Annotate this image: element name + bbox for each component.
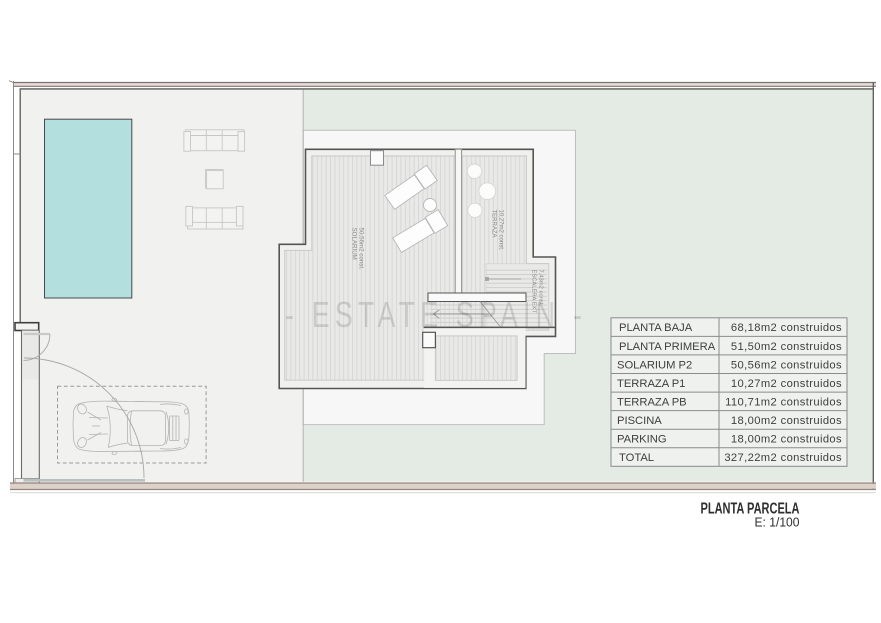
- svg-text:10,27m2 construidos: 10,27m2 construidos: [731, 378, 842, 390]
- svg-text:327,22m2 construidos: 327,22m2 construidos: [724, 452, 842, 464]
- svg-text:SOLARIUM P2: SOLARIUM P2: [617, 359, 692, 371]
- svg-text:50,56m2 const.: 50,56m2 const.: [358, 228, 365, 271]
- svg-text:50,56m2 construidos: 50,56m2 construidos: [731, 359, 842, 371]
- svg-text:TERRAZA PB: TERRAZA PB: [617, 396, 687, 408]
- svg-text:PLANTA BAJA: PLANTA BAJA: [619, 322, 693, 334]
- svg-text:110,71m2 construidos: 110,71m2 construidos: [725, 396, 842, 408]
- svg-text:E: 1/100: E: 1/100: [755, 515, 800, 530]
- svg-text:18,00m2 construidos: 18,00m2 construidos: [731, 415, 842, 427]
- svg-text:18,00m2 construidos: 18,00m2 construidos: [731, 434, 842, 446]
- svg-text:SOLARIUM: SOLARIUM: [351, 228, 358, 260]
- svg-text:PLANTA PRIMERA: PLANTA PRIMERA: [619, 341, 716, 353]
- svg-text:PISCINA: PISCINA: [617, 415, 662, 427]
- svg-text:68,18m2 construidos: 68,18m2 construidos: [731, 322, 842, 334]
- svg-text:TERRAZA: TERRAZA: [491, 210, 497, 238]
- svg-text:PARKING: PARKING: [617, 434, 667, 446]
- svg-text:- ESTATE SPAIN -: - ESTATE SPAIN -: [285, 294, 587, 335]
- svg-text:TERRAZA P1: TERRAZA P1: [617, 378, 685, 390]
- svg-text:10,27m2 const.: 10,27m2 const.: [498, 210, 504, 251]
- svg-text:51,50m2 construidos: 51,50m2 construidos: [731, 341, 842, 353]
- svg-text:TOTAL: TOTAL: [619, 452, 654, 464]
